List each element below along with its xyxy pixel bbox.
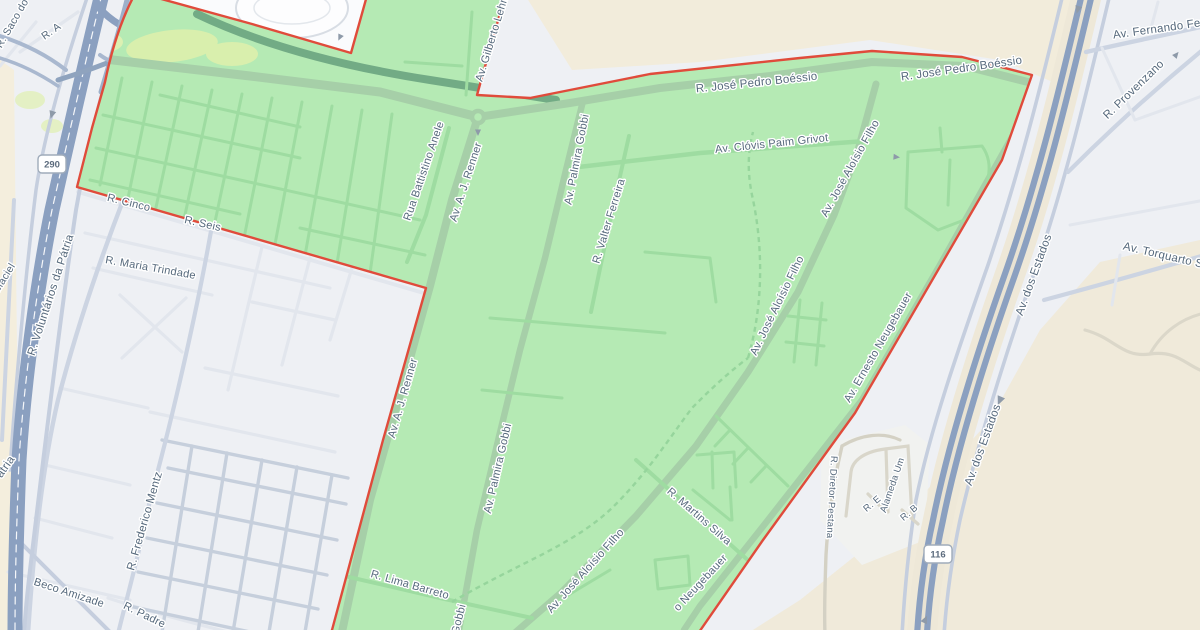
roundabout xyxy=(472,111,484,123)
street-map[interactable]: R. Saco doR. Ada MacielR. Voluntários da… xyxy=(0,0,1200,630)
road-shield: 290 xyxy=(38,155,66,173)
svg-text:116: 116 xyxy=(930,550,945,561)
svg-text:290: 290 xyxy=(44,160,60,171)
road-shield: 116 xyxy=(924,545,952,563)
map-canvas[interactable]: R. Saco doR. Ada MacielR. Voluntários da… xyxy=(0,0,1200,630)
park-patch xyxy=(206,42,258,66)
